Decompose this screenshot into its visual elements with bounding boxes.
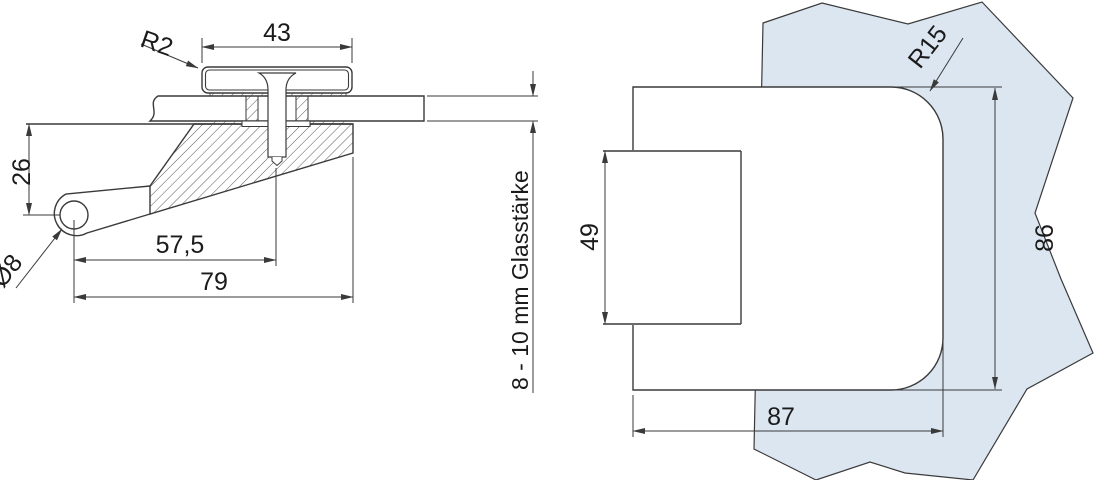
leader-cap-radius: R2	[137, 25, 198, 68]
dim-glass-thickness: 8 - 10 mm Glasstärke	[427, 71, 538, 393]
mounting-boss	[603, 150, 741, 325]
leader-hole-diameter: Ø8	[0, 229, 62, 293]
leader-hole-diameter-label: Ø8	[0, 249, 28, 293]
dim-glass-thickness-label: 8 - 10 mm Glasstärke	[507, 170, 533, 390]
dim-lug-height-label: 26	[8, 158, 36, 186]
dim-total-length-label: 79	[200, 268, 228, 296]
clamp-body-section	[150, 124, 353, 214]
glass-pane-section	[150, 96, 424, 121]
dim-boss-height: 49	[576, 151, 605, 324]
bushing-right-section	[296, 96, 308, 121]
dim-body-height-label: 86	[1031, 224, 1059, 252]
dim-cap-width-label: 43	[263, 19, 291, 47]
dim-boss-height-label: 49	[576, 223, 604, 251]
glass-clamp-drawing: 43 R2 26 Ø8 57,5 79	[0, 0, 1096, 480]
dim-body-width-label: 87	[767, 403, 795, 431]
bushing-left-section	[246, 96, 258, 121]
dim-cap-width: 43	[202, 19, 352, 63]
dim-screw-offset-label: 57,5	[156, 231, 205, 259]
dim-lug-height: 26	[8, 124, 60, 215]
technical-drawing-canvas: 43 R2 26 Ø8 57,5 79	[0, 0, 1096, 480]
right-view-front: 49 86 87 R15	[576, 2, 1093, 480]
left-view-section: 43 R2 26 Ø8 57,5 79	[0, 19, 538, 393]
